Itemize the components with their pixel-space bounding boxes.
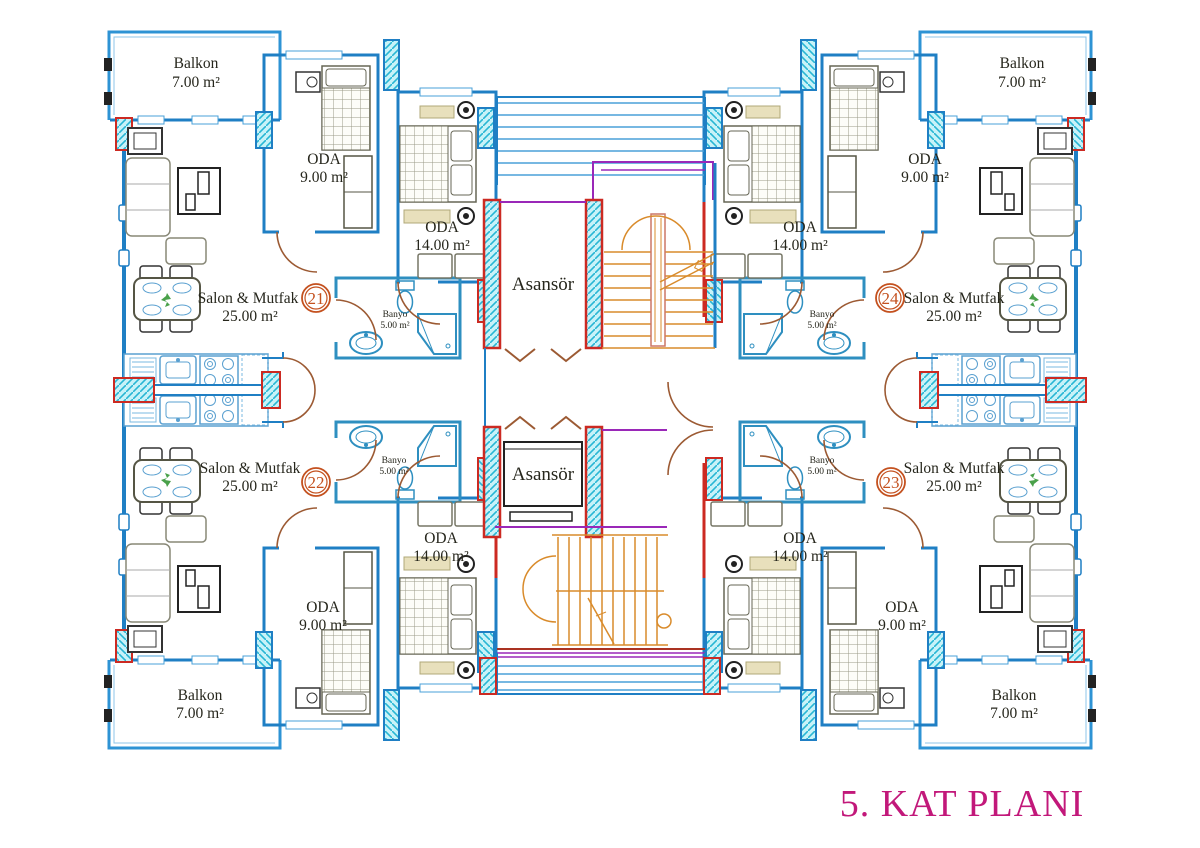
- floor-plan-canvas: Balkon 7.00 m² ODA 9.00 m² ODA 14.00 m² …: [0, 0, 1200, 848]
- apt23-oda-large-name: ODA: [783, 530, 817, 547]
- apt23-number: 23: [883, 473, 900, 492]
- apt21-oda-small-name: ODA: [307, 151, 341, 168]
- apt24-salon-name: Salon & Mutfak: [904, 290, 1005, 307]
- apt23-oda-large-area: 14.00 m²: [772, 548, 828, 565]
- apt23-banyo-area: 5.00 m²: [807, 467, 836, 477]
- apt24-oda-small-name: ODA: [908, 151, 942, 168]
- apt24-salon-area: 25.00 m²: [926, 308, 982, 325]
- window-band-top: [497, 97, 705, 185]
- apt21-oda-large-name: ODA: [425, 219, 459, 236]
- floor-plan-drawing: Balkon 7.00 m² ODA 9.00 m² ODA 14.00 m² …: [0, 0, 1200, 848]
- apt24-oda-large-area: 14.00 m²: [772, 237, 828, 254]
- apt21-balkon-name: Balkon: [174, 55, 219, 72]
- apartment-23-plan: [704, 392, 1096, 748]
- apt23-balkon-name: Balkon: [992, 687, 1037, 704]
- apt22-oda-large-name: ODA: [424, 530, 458, 547]
- apt21-salon-area: 25.00 m²: [222, 308, 278, 325]
- apt22-salon-name: Salon & Mutfak: [200, 460, 301, 477]
- apartment-22-plan: [104, 392, 496, 748]
- core-top: [484, 97, 715, 427]
- elevator-bottom-label: Asansör: [512, 464, 575, 485]
- apt24-balkon-name: Balkon: [1000, 55, 1045, 72]
- apt23-salon-area: 25.00 m²: [926, 478, 982, 495]
- staircase-bottom: [523, 535, 671, 645]
- core-bottom: [480, 417, 720, 694]
- apt24-number: 24: [882, 289, 900, 308]
- apt21-balkon-area: 7.00 m²: [172, 74, 220, 91]
- apt22-oda-small-area: 9.00 m²: [299, 617, 347, 634]
- apartment-21-plan: [104, 32, 496, 388]
- apt22-banyo-area: 5.00 m²: [379, 467, 408, 477]
- apt21-banyo-name: Banyo: [383, 310, 408, 320]
- plan-title: 5. KAT PLANI: [840, 783, 1085, 825]
- apt23-salon-name: Salon & Mutfak: [904, 460, 1005, 477]
- elevator-top-label: Asansör: [512, 274, 575, 295]
- staircase-top: [602, 163, 715, 348]
- apt24-oda-small-area: 9.00 m²: [901, 169, 949, 186]
- apt23-banyo-name: Banyo: [810, 456, 835, 466]
- apt22-banyo-name: Banyo: [382, 456, 407, 466]
- hall-entry-doors: [283, 358, 917, 422]
- apt23-oda-small-area: 9.00 m²: [878, 617, 926, 634]
- apt24-banyo-name: Banyo: [810, 310, 835, 320]
- apt23-oda-small-name: ODA: [885, 599, 919, 616]
- apt24-banyo-area: 5.00 m²: [807, 321, 836, 331]
- apt22-oda-small-name: ODA: [306, 599, 340, 616]
- apt22-oda-large-area: 14.00 m²: [413, 548, 469, 565]
- apt23-balkon-area: 7.00 m²: [990, 705, 1038, 722]
- apt21-salon-name: Salon & Mutfak: [198, 290, 299, 307]
- apt21-oda-large-area: 14.00 m²: [414, 237, 470, 254]
- apt24-balkon-area: 7.00 m²: [998, 74, 1046, 91]
- apt21-number: 21: [308, 289, 325, 308]
- apt22-balkon-area: 7.00 m²: [176, 705, 224, 722]
- apt21-oda-small-area: 9.00 m²: [300, 169, 348, 186]
- apt22-number: 22: [308, 473, 325, 492]
- apt24-oda-large-name: ODA: [783, 219, 817, 236]
- apt21-banyo-area: 5.00 m²: [380, 321, 409, 331]
- apt22-salon-area: 25.00 m²: [222, 478, 278, 495]
- window-band-bottom: [480, 653, 720, 694]
- apt22-balkon-name: Balkon: [178, 687, 223, 704]
